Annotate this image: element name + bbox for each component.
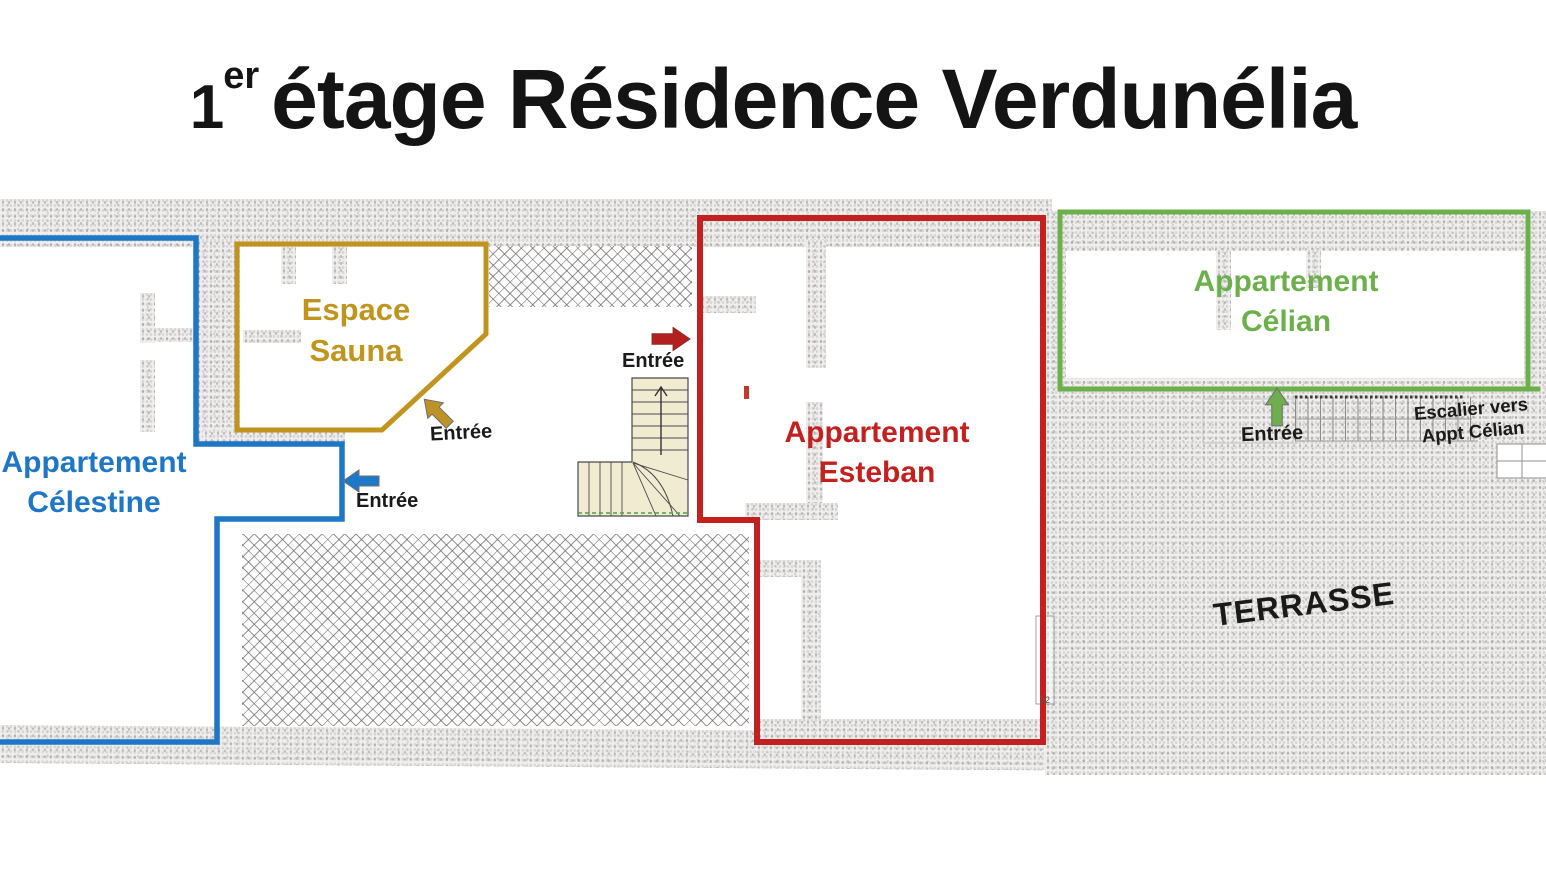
radiator-mark — [744, 386, 749, 399]
label-apartment-esteban: Appartement Esteban — [760, 413, 994, 492]
entrance-arrow-esteban — [652, 327, 690, 350]
floor-plan-page: 1erétage Résidence Verdunélia Appartemen… — [0, 0, 1546, 870]
entrance-arrow-celestine — [343, 470, 379, 492]
label-line: Appartement — [760, 413, 994, 453]
title-text: étage Résidence Verdunélia — [271, 52, 1356, 146]
label-entree-celian: Entrée — [1241, 422, 1304, 447]
label-line: Appartement — [0, 443, 190, 483]
label-line: Espace — [268, 290, 444, 331]
central-staircase — [578, 378, 688, 516]
label-line: Sauna — [268, 331, 444, 372]
label-espace-sauna: Espace Sauna — [268, 290, 444, 372]
label-line: Appartement — [1169, 262, 1403, 302]
label-entree-sauna: Entrée — [429, 420, 492, 446]
dimension-label: 22 — [1040, 695, 1050, 705]
page-title: 1erétage Résidence Verdunélia — [0, 26, 1546, 158]
label-apartment-celestine: Appartement Célestine — [0, 443, 190, 522]
label-entree-esteban: Entrée — [622, 350, 684, 373]
label-line: Célian — [1169, 302, 1403, 342]
label-entree-celestine: Entrée — [356, 490, 418, 513]
label-line: Esteban — [760, 453, 994, 493]
floor-number: 1 — [190, 73, 223, 142]
entrance-arrow-celian — [1265, 388, 1288, 426]
detail-grid — [1497, 444, 1546, 478]
floor-ordinal: er — [223, 55, 259, 97]
label-apartment-celian: Appartement Célian — [1169, 262, 1403, 341]
label-line: Célestine — [0, 483, 190, 523]
